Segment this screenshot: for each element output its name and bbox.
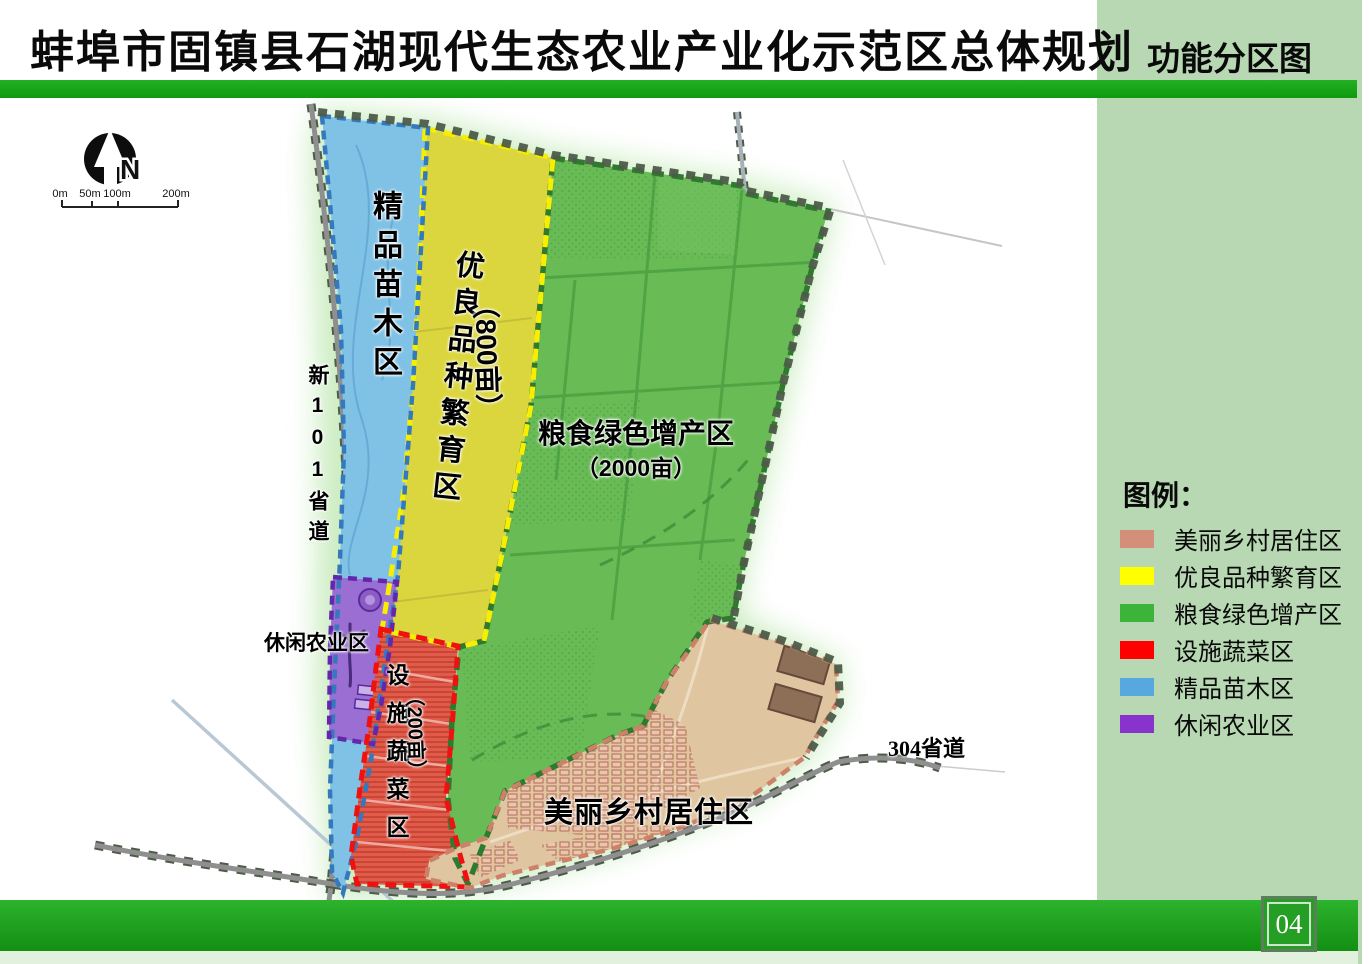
zone-label-leisure: 休闲农业区 [264, 627, 369, 657]
legend-item-village: 美丽乡村居住区 [1120, 520, 1350, 557]
legend-swatch-leisure [1120, 715, 1154, 733]
corner-title: 功能分区图 [1097, 32, 1362, 80]
road-label-304: 304省道 [888, 731, 965, 763]
legend-label-grain: 粮食绿色增产区 [1174, 595, 1342, 630]
legend-swatch-breeding [1120, 567, 1154, 585]
zone-label-nursery: 精品苗木区 [362, 190, 406, 385]
scale-0: 0m [52, 188, 67, 200]
legend-label-village: 美丽乡村居住区 [1174, 521, 1342, 556]
scale-bar [62, 200, 178, 207]
zone-area-grain: （2000亩） [526, 449, 746, 483]
legend-swatch-nursery [1120, 678, 1154, 696]
zone-area-vegetable: （200亩） [401, 686, 433, 780]
legend-label-breeding: 优良品种繁育区 [1174, 558, 1342, 593]
bottom-bar [0, 900, 1358, 951]
legend-title: 图例： [1123, 474, 1207, 514]
scale-labels: 0m 50m 100m 200m [52, 188, 189, 200]
legend-label-leisure: 休闲农业区 [1174, 706, 1294, 741]
legend-swatch-grain [1120, 604, 1154, 622]
legend: 美丽乡村居住区 优良品种繁育区 粮食绿色增产区 设施蔬菜区 精品苗木区 休闲农业… [1120, 520, 1350, 742]
compass-n: N [120, 154, 140, 185]
legend-label-vegetable: 设施蔬菜区 [1174, 632, 1294, 667]
page-number-box: 04 [1261, 896, 1317, 952]
zone-label-grain: 粮食绿色增产区 [526, 412, 746, 452]
zone-label-village: 美丽乡村居住区 [544, 789, 754, 831]
legend-item-grain: 粮食绿色增产区 [1120, 594, 1350, 631]
scale-50: 50m [79, 188, 100, 200]
legend-item-leisure: 休闲农业区 [1120, 705, 1350, 742]
scale-200: 200m [162, 188, 190, 200]
page-title: 蚌埠市固镇县石湖现代生态农业产业化示范区总体规划 [30, 16, 1080, 78]
legend-swatch-vegetable [1120, 641, 1154, 659]
legend-swatch-village [1120, 530, 1154, 548]
legend-item-vegetable: 设施蔬菜区 [1120, 631, 1350, 668]
road-southwest [95, 845, 332, 884]
bottom-margin-strip [0, 951, 1358, 964]
north-compass: N [84, 129, 140, 186]
zone-area-breeding: （800亩） [466, 290, 511, 422]
faint-road-ne [830, 209, 1002, 246]
scale-100: 100m [103, 188, 131, 200]
legend-item-breeding: 优良品种繁育区 [1120, 557, 1350, 594]
top-divider-bar [0, 80, 1357, 98]
page-number: 04 [1267, 902, 1311, 946]
plan-sheet: N 0m 50m 100m 200m 精品苗木区 优良品种繁育区 （800亩） … [0, 0, 1369, 964]
faint-road-east [936, 766, 1005, 772]
legend-item-nursery: 精品苗木区 [1120, 668, 1350, 705]
road-label-101: 新101省道 [302, 364, 332, 550]
legend-label-nursery: 精品苗木区 [1174, 669, 1294, 704]
